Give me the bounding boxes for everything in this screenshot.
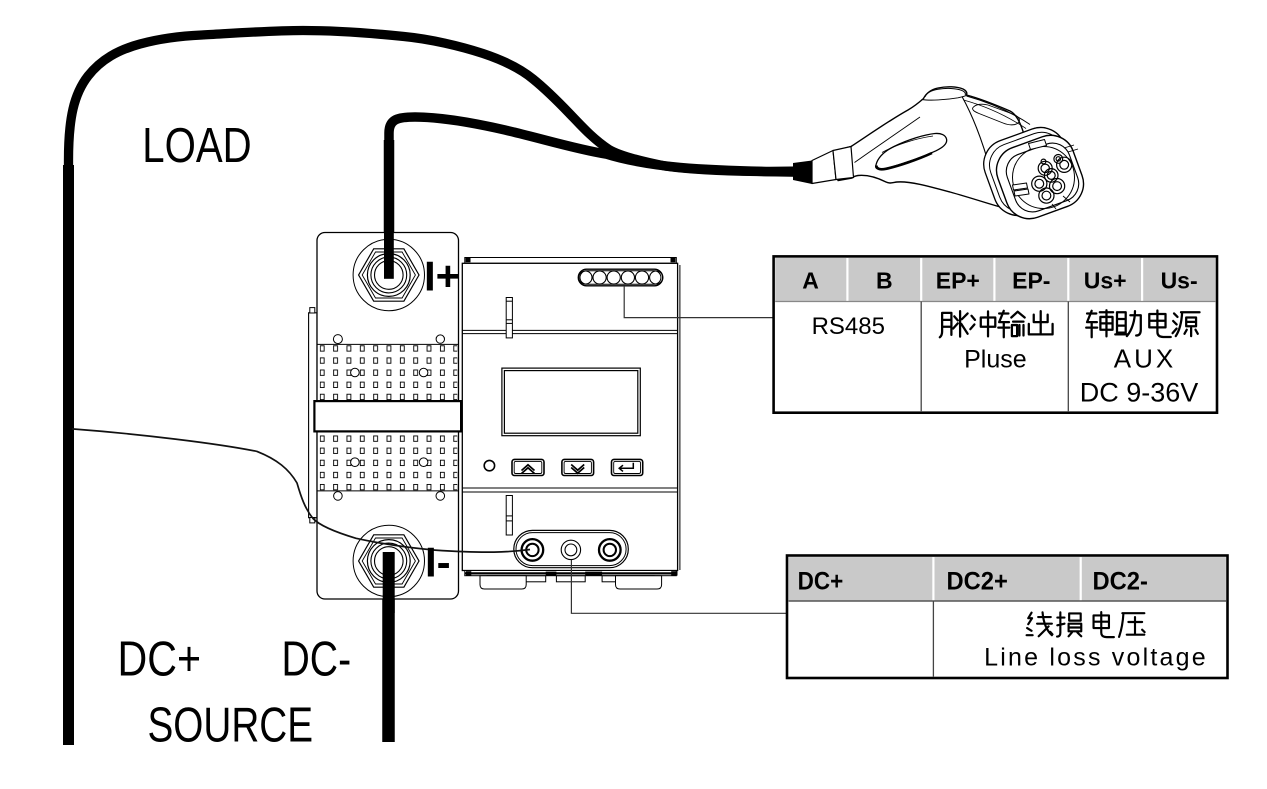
svg-text:I+: I+ [424, 253, 460, 300]
svg-text:I-: I- [425, 539, 451, 586]
svg-text:RS485: RS485 [812, 313, 885, 340]
svg-text:DC+: DC+ [118, 631, 201, 686]
svg-text:EP+: EP+ [936, 267, 980, 293]
svg-text:AUX: AUX [1114, 344, 1176, 374]
svg-text:LOAD: LOAD [142, 118, 251, 173]
svg-text:Us-: Us- [1161, 267, 1198, 293]
svg-text:DC-: DC- [282, 633, 352, 687]
svg-text:Pluse: Pluse [964, 346, 1027, 374]
svg-text:A: A [802, 267, 819, 293]
svg-text:DC 9-36V: DC 9-36V [1080, 378, 1199, 408]
svg-text:B: B [876, 267, 893, 293]
svg-text:DC+: DC+ [798, 567, 844, 595]
svg-text:DC2-: DC2- [1093, 568, 1148, 596]
svg-text:DC2+: DC2+ [947, 568, 1008, 596]
svg-text:SOURCE: SOURCE [148, 698, 314, 752]
svg-text:Us+: Us+ [1084, 267, 1127, 293]
svg-text:Line loss voltage: Line loss voltage [984, 644, 1208, 672]
svg-text:EP-: EP- [1012, 267, 1050, 293]
